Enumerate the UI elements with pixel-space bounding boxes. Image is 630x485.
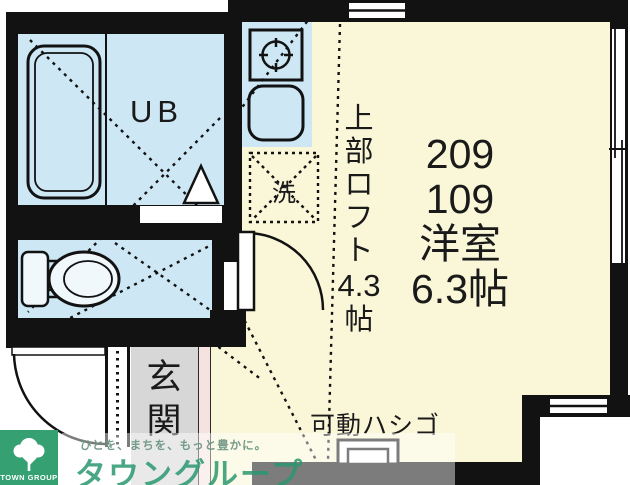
wall-bath-kitchen-divider — [224, 22, 242, 262]
outside-notch — [538, 415, 630, 485]
floorplan-canvas: UB 洗 209 109 洋室 6.3帖 上 部 ロ フ ト 4.3 帖 玄 関… — [0, 0, 630, 485]
brand-watermark: ひとを、まちを、もっと豊かに。 タウングループ — [62, 433, 455, 485]
unit-number-2: 109 — [426, 177, 494, 222]
wall-bath-bottom — [12, 205, 224, 240]
loft-label: 上 部 ロ フ ト 4.3 帖 — [338, 103, 380, 337]
room-unit-bath — [18, 34, 224, 205]
washer-label: 洗 — [250, 173, 318, 208]
room-info-label: 209 109 洋室 6.3帖 — [390, 132, 530, 312]
brand-company-name: タウングループ — [75, 449, 304, 485]
wall-right — [610, 0, 628, 417]
wall-left — [6, 12, 18, 348]
wall-entrance-post — [104, 335, 131, 362]
brand-logo-text: TOWN GROUP — [0, 473, 57, 482]
brand-logo: TOWN GROUP — [0, 430, 58, 485]
room-size-label: 6.3帖 — [411, 267, 509, 312]
kitchen-counter-area — [242, 22, 312, 147]
tree-icon — [9, 435, 49, 473]
wall-toilet-right — [212, 235, 227, 318]
unit-number-1: 209 — [426, 132, 494, 177]
unit-bath-label: UB — [130, 94, 183, 130]
room-type-label: 洋室 — [419, 222, 501, 267]
entrance-label: 玄 関 — [134, 356, 194, 444]
room-toilet — [18, 240, 212, 322]
wall-stub-hall — [210, 310, 246, 347]
wall-top-main — [228, 0, 628, 22]
wall-notch-vertical — [522, 395, 540, 485]
wall-top-left — [6, 12, 240, 34]
